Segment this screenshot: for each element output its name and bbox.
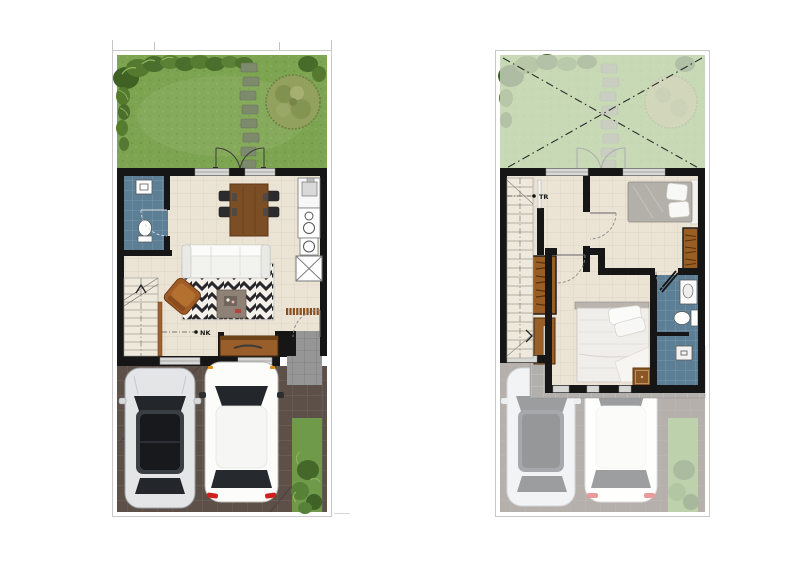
pillow	[668, 201, 689, 218]
stair-direction-label: TR	[539, 193, 548, 201]
garden-void	[498, 54, 705, 172]
floor-plan-page: NK	[0, 0, 800, 565]
back-garden	[113, 55, 327, 172]
rear-window	[135, 478, 185, 494]
pillow	[666, 183, 688, 201]
crop-mark	[279, 42, 280, 50]
counter-x-icon	[296, 256, 322, 281]
garden-tree	[266, 75, 320, 129]
single-bed	[628, 180, 698, 224]
bedroom2-wardrobe	[683, 228, 698, 272]
void-fade-overlay	[500, 55, 705, 172]
first-floor-plan: NK	[112, 50, 332, 517]
bedside-rug	[633, 368, 651, 386]
entry-porch	[296, 331, 320, 356]
windshield	[215, 386, 268, 406]
sink-icon	[136, 180, 152, 194]
planting-bed	[291, 418, 322, 514]
appliance-icon	[300, 238, 318, 255]
crop-mark	[112, 40, 113, 50]
entry-stoop	[287, 356, 322, 385]
coffee-table	[217, 290, 246, 318]
shower-drain-icon	[676, 346, 692, 360]
stair-rail	[158, 302, 162, 356]
second-floor-plan: TR	[495, 50, 710, 517]
kitchen-sink-icon	[298, 178, 320, 208]
toilet-icon	[674, 310, 698, 326]
stair-direction-label: NK	[200, 329, 211, 337]
crop-mark	[331, 40, 332, 50]
car-silver	[119, 368, 201, 508]
car-white	[199, 362, 284, 502]
sink-icon	[680, 280, 697, 304]
toilet-icon	[138, 220, 152, 242]
shower-partition	[657, 332, 689, 336]
crop-mark	[334, 513, 350, 514]
crop-mark	[154, 42, 155, 50]
stove-icon	[298, 208, 320, 238]
sofa	[182, 245, 270, 278]
master-wardrobe	[532, 256, 556, 314]
console-table	[220, 336, 278, 356]
